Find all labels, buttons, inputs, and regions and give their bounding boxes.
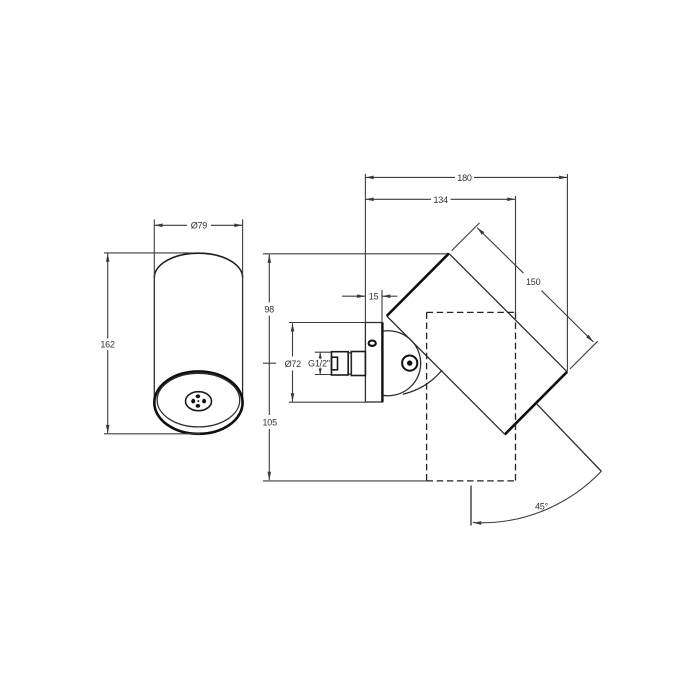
svg-text:105: 105: [262, 418, 277, 428]
svg-text:G1/2": G1/2": [308, 358, 330, 368]
svg-text:15: 15: [369, 291, 379, 301]
svg-text:Ø72: Ø72: [285, 359, 302, 369]
svg-text:150: 150: [526, 277, 541, 287]
svg-text:Ø79: Ø79: [191, 221, 208, 231]
svg-text:162: 162: [100, 340, 115, 350]
svg-text:45°: 45°: [535, 502, 549, 512]
svg-text:180: 180: [457, 173, 472, 183]
svg-text:98: 98: [264, 305, 274, 315]
svg-text:134: 134: [433, 195, 448, 205]
